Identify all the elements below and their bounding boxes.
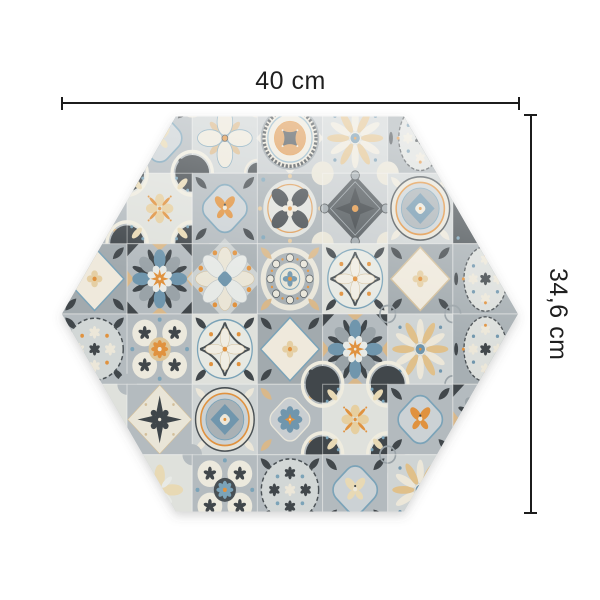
height-dimension-tick-top: [524, 114, 537, 116]
height-dimension-line: [530, 115, 532, 514]
tile-cell-pale-flower: [52, 92, 137, 183]
tile-cell-flower12: [54, 446, 135, 533]
width-dimension-label: 40 cm: [62, 67, 519, 96]
height-dimension-tick-bottom: [524, 512, 537, 514]
tile-cell-pale-flower: [443, 444, 528, 535]
tile-cell-pale-flower: [443, 92, 528, 183]
width-dimension-tick-left: [61, 97, 63, 110]
height-dimension-label: 34,6 cm: [540, 115, 572, 514]
width-dimension-line: [62, 102, 519, 104]
tile-patchwork: [52, 90, 528, 536]
gloss-highlight: [62, 117, 518, 512]
width-dimension-tick-right: [518, 97, 520, 110]
product-dimension-image: 40 cm 34,6 cm: [0, 0, 600, 600]
